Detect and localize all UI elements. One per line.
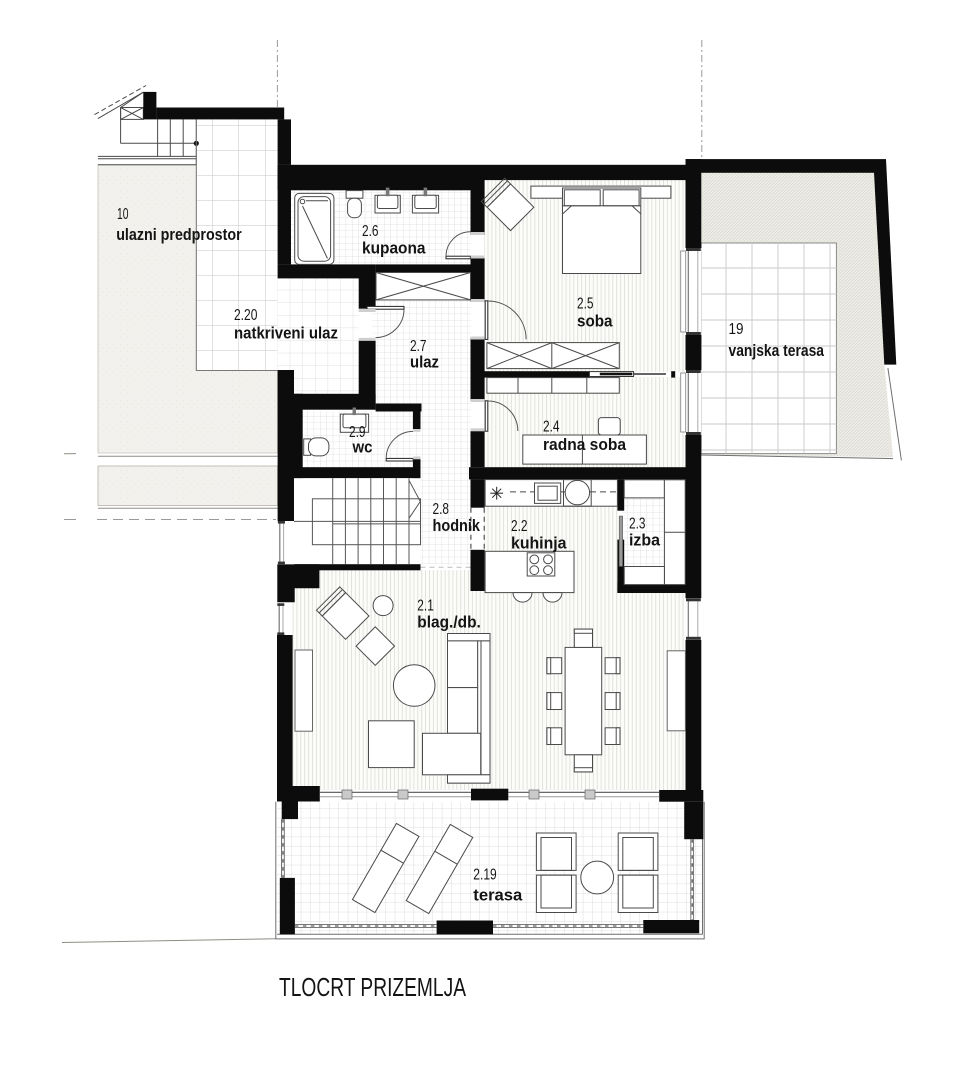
- svg-text:10: 10: [117, 206, 129, 223]
- svg-text:2.6: 2.6: [362, 223, 379, 240]
- svg-text:wc: wc: [352, 438, 373, 457]
- svg-text:TLOCRT PRIZEMLJA: TLOCRT PRIZEMLJA: [279, 972, 466, 1002]
- svg-text:blag./db.: blag./db.: [417, 613, 481, 632]
- svg-text:ulazni predprostor: ulazni predprostor: [116, 225, 242, 244]
- svg-text:natkriveni ulaz: natkriveni ulaz: [234, 324, 338, 343]
- svg-text:radna soba: radna soba: [543, 435, 626, 454]
- svg-text:2.5: 2.5: [577, 296, 594, 313]
- svg-text:ulaz: ulaz: [410, 353, 439, 372]
- svg-text:hodnik: hodnik: [433, 516, 481, 535]
- svg-text:2.19: 2.19: [473, 867, 496, 884]
- svg-text:izba: izba: [629, 531, 661, 550]
- svg-text:vanjska terasa: vanjska terasa: [729, 341, 825, 360]
- svg-text:kupaona: kupaona: [362, 239, 426, 258]
- svg-text:kuhinja: kuhinja: [511, 534, 567, 553]
- svg-text:soba: soba: [577, 311, 613, 330]
- svg-text:19: 19: [729, 321, 744, 338]
- svg-text:2.4: 2.4: [543, 419, 560, 436]
- svg-text:2.2: 2.2: [511, 518, 528, 535]
- svg-text:2.20: 2.20: [234, 307, 258, 324]
- svg-text:terasa: terasa: [473, 886, 523, 905]
